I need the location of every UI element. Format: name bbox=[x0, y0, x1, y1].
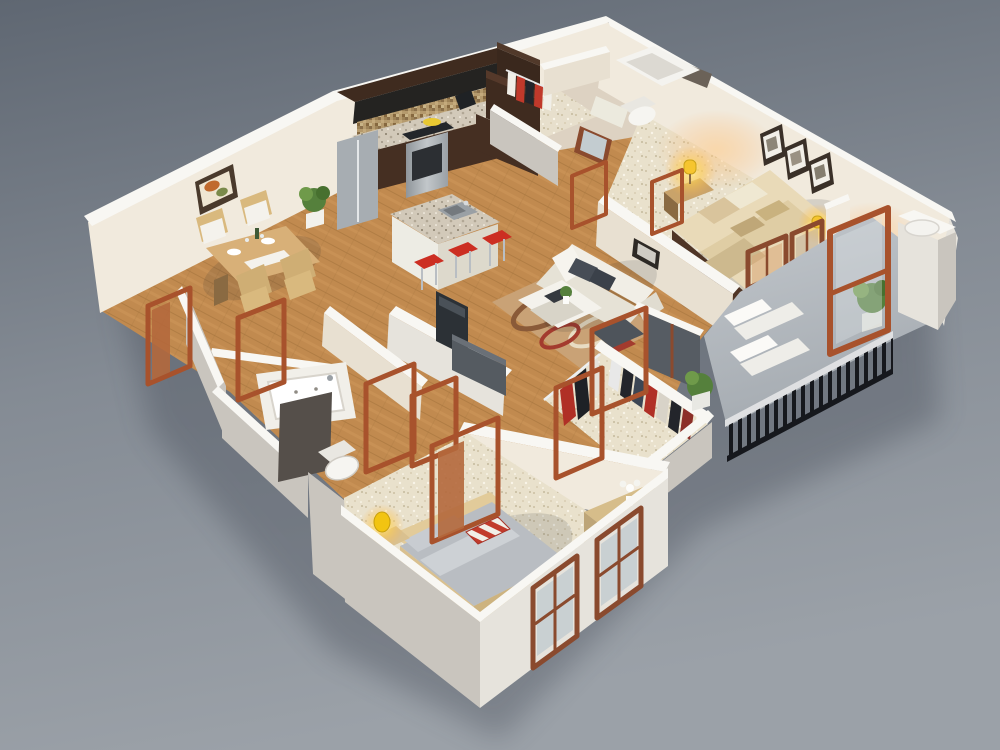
bottle bbox=[255, 228, 259, 239]
fruit-plate bbox=[423, 118, 441, 126]
round-table-top bbox=[905, 220, 939, 236]
door-leaf bbox=[438, 441, 464, 539]
white-flowers bbox=[634, 480, 641, 487]
plate bbox=[261, 238, 275, 245]
vanity-mirror-dark bbox=[278, 392, 332, 482]
white-flowers bbox=[620, 481, 627, 488]
plant-foliage bbox=[299, 187, 313, 201]
plant-foliage bbox=[316, 186, 330, 200]
garment bbox=[534, 84, 543, 109]
column-face bbox=[898, 222, 938, 330]
right-column bbox=[898, 210, 956, 330]
white-flowers bbox=[626, 484, 634, 492]
tub-jet bbox=[314, 387, 318, 391]
lamp-body bbox=[374, 512, 390, 532]
floorplan-render: Kitchen bbox=[0, 0, 1000, 750]
garment bbox=[507, 72, 516, 97]
island-faucet bbox=[464, 201, 469, 206]
glassware bbox=[260, 234, 264, 238]
table-vase bbox=[563, 296, 569, 304]
door-leaf bbox=[152, 302, 170, 380]
floorplan-svg: Kitchen bbox=[0, 0, 1000, 750]
plate bbox=[227, 249, 241, 256]
lamp-body bbox=[684, 160, 696, 174]
plant-foliage bbox=[685, 371, 699, 385]
tub-faucet bbox=[327, 375, 333, 381]
garment bbox=[525, 80, 534, 105]
tub-jet bbox=[294, 390, 298, 394]
glassware bbox=[245, 238, 249, 242]
garment bbox=[516, 76, 525, 103]
